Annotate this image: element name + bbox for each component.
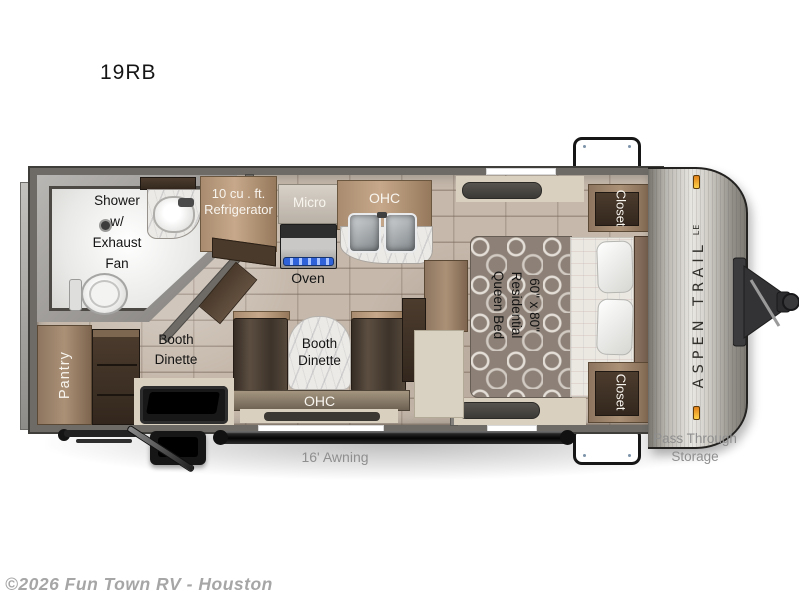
kitchen-faucet-icon [377,212,387,218]
awning-end-cap [560,430,575,445]
bed-label: 60" x 80" Residential Queen Bed [471,260,561,350]
pass-through-label: Pass Through Storage [645,430,745,466]
kitchen-sink-left [348,213,381,253]
entry-step-well [140,386,228,424]
brand-name: ASPEN TRAIL [691,240,707,388]
brand-logo: ASPEN TRAIL LE [686,196,712,416]
toilet-lid [89,280,120,308]
closet-bottom: Closet [588,362,652,423]
pantry-cabinet-top [93,330,139,337]
bedroom-mat-bottom [458,402,540,419]
awning-label: 16' Awning [280,449,390,467]
refrigerator-label: 10 cu . ft. Refrigerator [201,177,276,219]
step-well-inner [146,392,220,414]
booth-seat-left [233,318,288,392]
rear-bumper-bar2 [76,439,132,443]
closet-top: Closet [588,184,652,232]
booth-seat-right [351,318,406,392]
pantry-cabinet [92,329,140,425]
closet-bottom-label: Closet [612,374,628,411]
kitchen-sink-right [384,213,417,253]
rear-bumper-channel [20,182,30,430]
storage-door-bottom [573,427,641,465]
brand-series: LE [692,224,701,236]
floorplan-title: 19RB [100,60,157,86]
floorplan-image: 19RB Shower w/ Exhaust Fan 10 cu . ft. [0,0,800,600]
bathroom-faucet-icon [178,198,194,207]
oven-label: Oven [282,270,334,288]
dinette-table-label: Booth Dinette [289,336,350,370]
oven [280,224,337,269]
pantry-label: Pantry [55,351,73,399]
hitch [733,252,799,352]
dinette-ohc-label: OHC [230,391,409,411]
drawer-divider [97,394,137,396]
awning-end-cap [213,430,228,445]
dinette-ohc: OHC [229,390,410,411]
bedroom-mat-top [462,182,542,199]
microwave-label: Micro [279,185,340,212]
pillow [596,240,634,293]
wardrobe-tall [424,260,468,332]
marker-light-top [693,175,700,189]
dinette-door-mat [264,412,380,421]
awning-bar [216,431,572,444]
closet-top-label: Closet [612,190,628,227]
window-top [486,168,556,175]
pantry: Pantry [37,325,92,425]
oven-burner-strip [283,257,334,266]
kitchen-ohc-label: OHC [338,181,431,208]
wardrobe-panel [414,330,464,418]
pillow [596,298,634,355]
microwave: Micro [278,184,341,224]
copyright: ©2026 Fun Town RV - Houston [5,574,273,595]
drawer-divider [97,364,137,366]
